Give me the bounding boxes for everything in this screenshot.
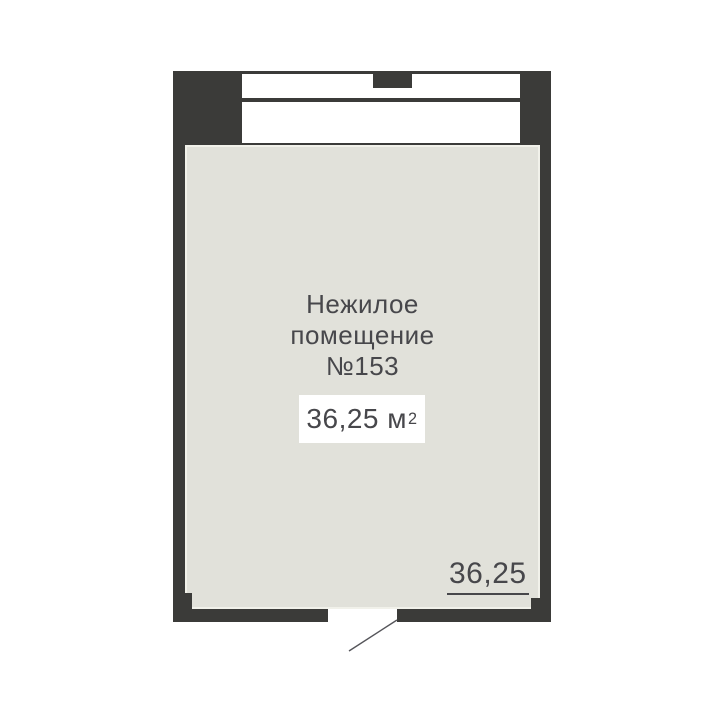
room-floor: Нежилое помещение №153 36,25 м2 36,25 [185, 145, 540, 609]
room-name-line: помещение [185, 320, 540, 351]
room-name-line: Нежилое [185, 289, 540, 320]
area-value: 36,25 м [306, 403, 407, 435]
room-name-label: Нежилое помещение №153 [185, 289, 540, 382]
window-opening-lower [242, 102, 520, 143]
wall-notch-bottom-right [531, 598, 540, 609]
door-opening [328, 609, 397, 622]
area-dimension-label: 36,25 [447, 557, 529, 595]
wall-notch-bottom-left [185, 593, 192, 609]
exterior-walls: Нежилое помещение №153 36,25 м2 36,25 [173, 71, 551, 622]
window-opening-upper [242, 74, 520, 98]
room-number-line: №153 [185, 351, 540, 382]
floor-plan-canvas: Нежилое помещение №153 36,25 м2 36,25 [0, 0, 726, 726]
window-mullion [373, 74, 412, 88]
area-badge: 36,25 м2 [299, 395, 425, 443]
